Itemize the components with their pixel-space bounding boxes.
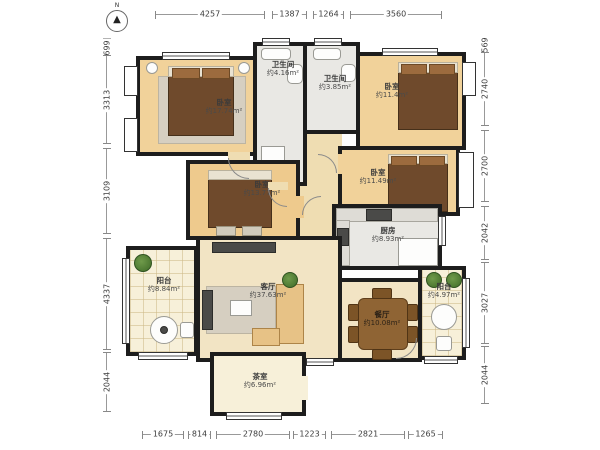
- room-label: 餐厅约10.08m²: [364, 310, 401, 328]
- dining-chair: [348, 326, 359, 343]
- window: [424, 356, 458, 364]
- dim-bottom-3: 2780: [216, 431, 290, 439]
- wall-lamp-icon: [238, 62, 250, 74]
- room-label: 卫生间约4.16m²: [267, 60, 299, 78]
- room-label: 阳台约4.97m²: [428, 282, 460, 300]
- dim-top-4: 3560: [350, 11, 442, 19]
- sofa-chaise: [252, 328, 280, 346]
- room-label: 茶室约6.96m²: [244, 372, 276, 390]
- dim-left-5: 2044: [103, 352, 111, 412]
- dining-chair: [407, 304, 418, 321]
- dim-right-4: 2042: [481, 206, 489, 260]
- room-label: 厨房约8.93m²: [372, 226, 404, 244]
- bay-window: [462, 62, 476, 96]
- dim-bottom-1: 1675: [142, 431, 184, 439]
- dining-chair: [348, 304, 359, 321]
- dim-left-3: 3109: [103, 148, 111, 234]
- slippers: [216, 226, 236, 236]
- room-tea: 茶室约6.96m²: [210, 352, 306, 416]
- window: [462, 278, 470, 348]
- window: [262, 38, 290, 46]
- wall-lamp-icon: [146, 62, 158, 74]
- window: [438, 216, 446, 246]
- dim-top-3: 1264: [313, 11, 344, 19]
- bathroom-vanity: [261, 48, 291, 60]
- bathroom-vanity: [313, 48, 341, 60]
- laundry-basket: [180, 322, 194, 338]
- bed-pillow: [202, 68, 230, 79]
- room-label: 卫生间约3.85m²: [319, 74, 351, 92]
- room-label: 卧室约11.4m²: [376, 82, 408, 100]
- bed-pillow: [401, 64, 427, 75]
- bed-pillow: [391, 156, 417, 166]
- door-opening: [338, 154, 346, 174]
- dining-chair: [372, 349, 392, 360]
- bed-pillow: [419, 156, 445, 166]
- slippers: [242, 226, 262, 236]
- dim-bottom-5: 2821: [331, 431, 405, 439]
- window: [314, 38, 342, 46]
- dim-bottom-6: 1265: [408, 431, 443, 439]
- door-opening: [300, 376, 308, 400]
- dim-top-1: 4257: [155, 11, 265, 19]
- dim-bottom-4: 1223: [293, 431, 326, 439]
- wash-basin-icon: [431, 304, 457, 330]
- bed-pillow: [429, 64, 455, 75]
- bay-window: [124, 66, 138, 96]
- stool: [436, 336, 452, 351]
- room-label: 阳台约8.84m²: [148, 276, 180, 294]
- dim-top-2: 1387: [272, 11, 307, 19]
- dim-right-2: 2740: [481, 52, 489, 126]
- dresser-console: [212, 242, 276, 253]
- dim-bottom-2: 814: [188, 431, 211, 439]
- coffee-table: [230, 300, 252, 316]
- stove-icon: [366, 209, 392, 221]
- room-bedroom-master: 卧室约17.74m²: [136, 56, 258, 156]
- window: [162, 52, 230, 60]
- dim-left-4: 4337: [103, 238, 111, 350]
- room-balcony-left: 阳台约8.84m²: [126, 246, 198, 356]
- window: [138, 352, 188, 360]
- room-kitchen: 厨房约8.93m²: [332, 204, 442, 270]
- washing-machine-door: [160, 326, 168, 334]
- plant-icon: [134, 254, 152, 272]
- bed-pillow: [172, 68, 200, 79]
- dim-right-3: 2700: [481, 130, 489, 202]
- window: [306, 358, 334, 366]
- window: [122, 258, 130, 344]
- room-label: 卧室约17.74m²: [206, 98, 243, 116]
- room-bathroom-2: 卫生间约3.85m²: [303, 42, 360, 134]
- dim-right-5: 3027: [481, 262, 489, 344]
- window: [382, 48, 438, 56]
- dining-chair: [372, 288, 392, 299]
- room-label: 卧室约11.49m²: [360, 168, 397, 186]
- tv-console: [202, 290, 213, 330]
- bay-window: [124, 118, 138, 152]
- dim-left-2: 3313: [103, 55, 111, 144]
- dim-right-6: 2044: [481, 346, 489, 404]
- room-balcony-right: 阳台约4.97m²: [418, 266, 466, 360]
- room-bedroom-top-right: 卧室约11.4m²: [356, 52, 466, 150]
- bay-window: [458, 152, 474, 208]
- room-living: 客厅约37.63m²: [196, 236, 342, 362]
- compass-north-icon: N ▲: [106, 10, 128, 32]
- room-label: 客厅约37.63m²: [250, 282, 287, 300]
- window: [226, 412, 282, 420]
